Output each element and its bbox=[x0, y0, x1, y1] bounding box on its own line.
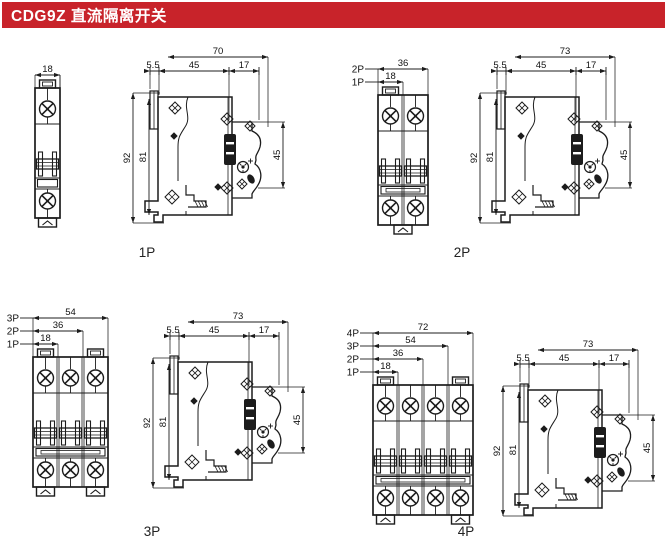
dim-label: 81 bbox=[485, 152, 496, 163]
dim-label: 1P bbox=[347, 368, 360, 379]
page: { "header": { "title": "CDG9Z 直流隔离开关", "… bbox=[0, 0, 668, 550]
dim-label: 73 bbox=[233, 311, 244, 322]
dim-label: 3P bbox=[7, 314, 20, 325]
dim-label: 81 bbox=[508, 445, 519, 456]
drawing-group-1p: 18705.545179281451P bbox=[35, 46, 285, 260]
dim-label: 81 bbox=[138, 152, 149, 163]
dim-label: 45 bbox=[272, 150, 283, 161]
caption-4p: 4P bbox=[458, 524, 475, 539]
dim-label: 45 bbox=[642, 443, 653, 454]
caption-1p: 1P bbox=[139, 245, 156, 260]
front-view-4p: 724P543P362P181P bbox=[347, 322, 473, 524]
dim-label: 36 bbox=[398, 58, 409, 69]
dim-label: 4P bbox=[347, 329, 360, 340]
dim-label: 5.5 bbox=[516, 353, 529, 364]
dim-label: 45 bbox=[619, 150, 630, 161]
front-view-3p: 543P362P181P bbox=[7, 307, 108, 496]
dim-label: 17 bbox=[259, 325, 270, 336]
side-view-1p: 705.54517928145 bbox=[122, 46, 285, 223]
dim-label: 45 bbox=[559, 353, 570, 364]
front-view-1p: 18 bbox=[35, 64, 60, 227]
dim-label: 2P bbox=[7, 327, 20, 338]
dim-label: 17 bbox=[609, 353, 620, 364]
dim-label: 73 bbox=[583, 339, 594, 350]
dim-label: 54 bbox=[405, 335, 416, 346]
drawing-group-2p: 362P181P735.545179281452P bbox=[352, 46, 632, 260]
dim-label: 45 bbox=[189, 60, 200, 71]
dim-label: 70 bbox=[213, 46, 224, 57]
dim-label: 5.5 bbox=[493, 60, 506, 71]
side-view-2p: 735.54517928145 bbox=[469, 46, 632, 223]
dim-label: 18 bbox=[380, 361, 391, 372]
dim-label: 3P bbox=[347, 342, 360, 353]
dim-label: 92 bbox=[142, 418, 153, 429]
caption-3p: 3P bbox=[144, 524, 161, 539]
dim-label: 54 bbox=[65, 307, 76, 318]
dim-label: 1P bbox=[352, 78, 365, 89]
drawing-group-4p: 724P543P362P181P735.545179281454P bbox=[347, 322, 655, 539]
dim-label: 45 bbox=[209, 325, 220, 336]
dim-label: 45 bbox=[536, 60, 547, 71]
dim-label: 18 bbox=[40, 333, 51, 344]
dim-label: 18 bbox=[385, 71, 396, 82]
dim-label: 1P bbox=[7, 340, 20, 351]
dimension-drawings: 18705.545179281451P362P181P735.545179281… bbox=[0, 0, 668, 550]
dim-label: 17 bbox=[586, 60, 597, 71]
dim-label: 73 bbox=[560, 46, 571, 57]
dim-label: 5.5 bbox=[166, 325, 179, 336]
dim-label: 72 bbox=[418, 322, 429, 333]
dim-label: 2P bbox=[352, 65, 365, 76]
dim-label: 81 bbox=[158, 417, 169, 428]
dim-label: 2P bbox=[347, 355, 360, 366]
front-view-2p: 362P181P bbox=[352, 58, 428, 234]
side-view-4p: 735.54517928145 bbox=[492, 339, 655, 516]
dim-label: 5.5 bbox=[146, 60, 159, 71]
drawing-group-3p: 543P362P181P735.545179281453P bbox=[7, 307, 305, 539]
dim-label: 45 bbox=[292, 415, 303, 426]
dim-label: 92 bbox=[492, 446, 503, 457]
dim-label: 17 bbox=[239, 60, 250, 71]
caption-2p: 2P bbox=[454, 245, 471, 260]
dim-label: 36 bbox=[53, 320, 64, 331]
dim-label: 36 bbox=[393, 348, 404, 359]
dim-label: 92 bbox=[122, 153, 133, 164]
side-view-3p: 735.54517928145 bbox=[142, 311, 305, 488]
dim-label: 92 bbox=[469, 153, 480, 164]
dim-label: 18 bbox=[42, 64, 53, 75]
